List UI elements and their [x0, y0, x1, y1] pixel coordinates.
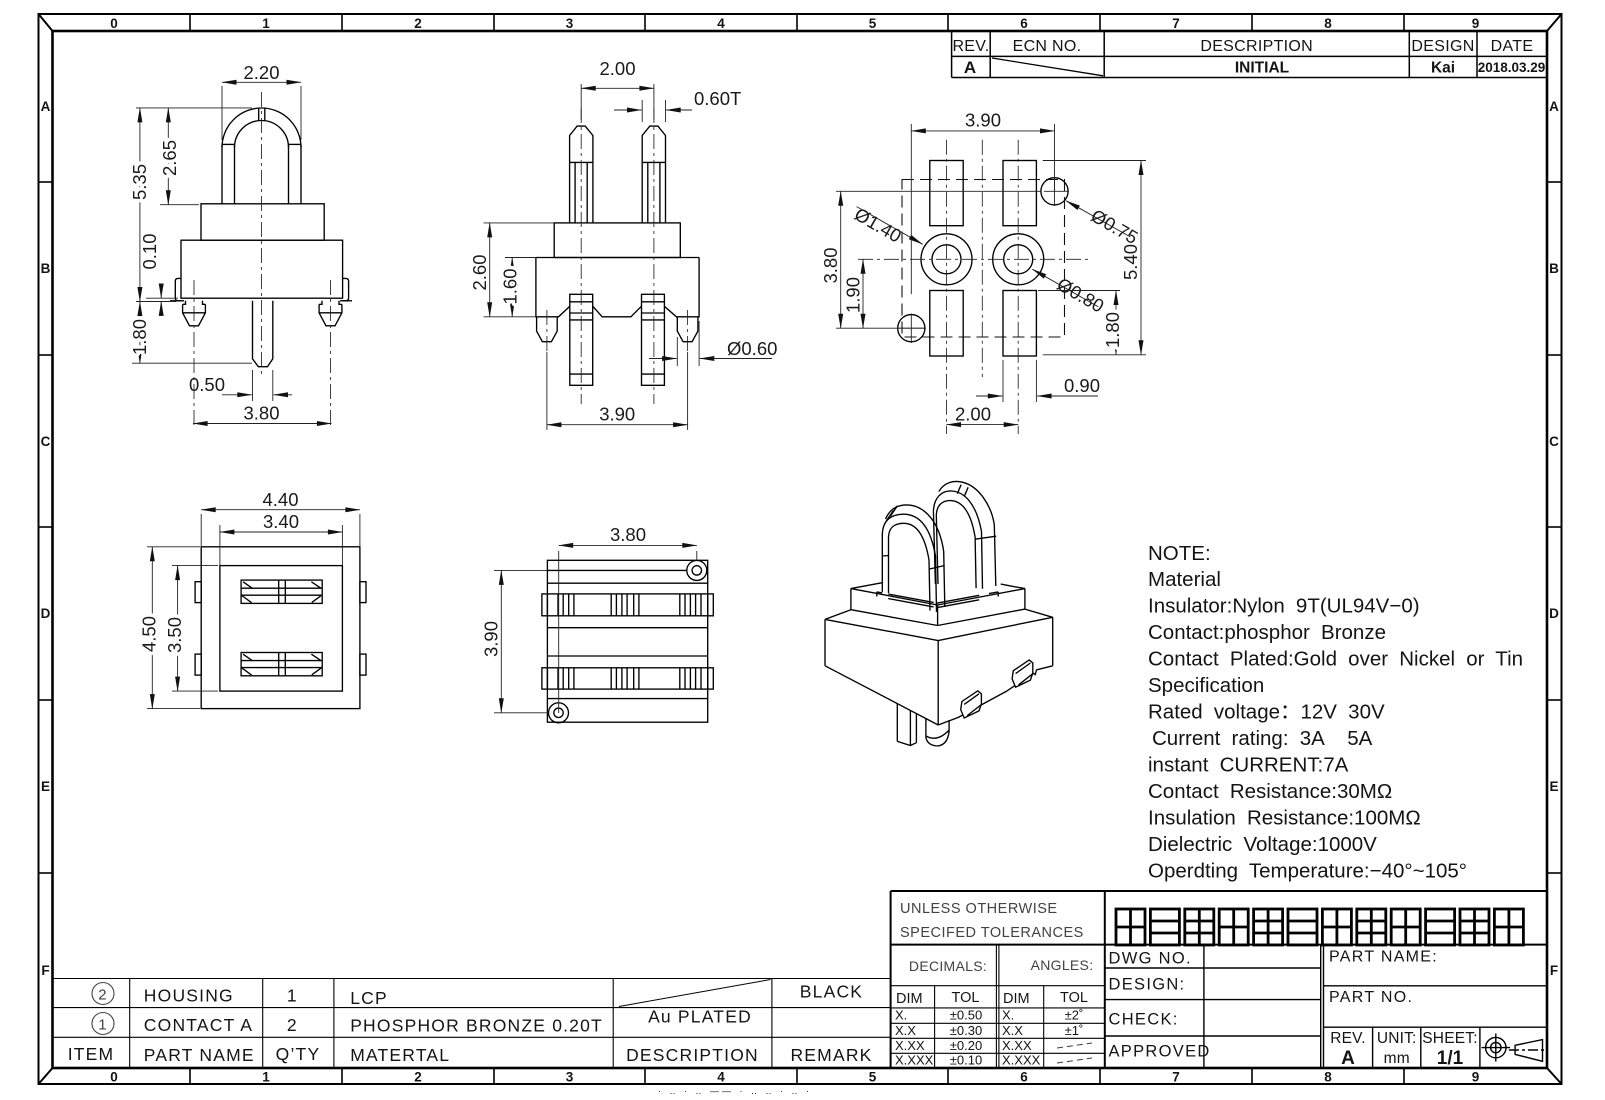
svg-text:A: A	[1549, 99, 1559, 114]
svg-text:Dielectric Voltage:1000V: Dielectric Voltage:1000V	[1148, 833, 1377, 856]
svg-text:mm: mm	[1384, 1050, 1410, 1067]
svg-text:ECN NO.: ECN NO.	[1013, 38, 1082, 55]
svg-text:0: 0	[110, 1070, 118, 1085]
svg-text:SHEET:: SHEET:	[1422, 1030, 1477, 1047]
svg-text:DESCRIPTION: DESCRIPTION	[1200, 38, 1313, 55]
svg-text:X.XX: X.XX	[1002, 1038, 1032, 1053]
svg-text:Insulation Resistance:100MΩ: Insulation Resistance:100MΩ	[1148, 807, 1421, 830]
svg-text:1.80: 1.80	[129, 319, 150, 355]
svg-text:1/1: 1/1	[1437, 1048, 1464, 1069]
svg-text:REV.: REV.	[952, 38, 989, 55]
svg-text:4.40: 4.40	[262, 489, 298, 510]
svg-text:DESIGN:: DESIGN:	[1109, 976, 1186, 994]
svg-text:X.XXX: X.XXX	[895, 1053, 934, 1068]
svg-text:C: C	[41, 434, 51, 449]
svg-text:2.20: 2.20	[243, 62, 279, 83]
svg-text:1: 1	[262, 16, 270, 31]
svg-text:7: 7	[1172, 1070, 1180, 1085]
svg-text:DESCRIPTION: DESCRIPTION	[626, 1045, 759, 1065]
svg-text:1: 1	[98, 1017, 108, 1034]
svg-text:A: A	[1341, 1048, 1355, 1069]
svg-text:B: B	[1549, 261, 1559, 276]
svg-text:3.80: 3.80	[820, 247, 841, 283]
svg-text:DWG NO.: DWG NO.	[1109, 950, 1192, 968]
svg-text:3.90: 3.90	[965, 110, 1001, 131]
svg-text:1: 1	[262, 1070, 270, 1085]
svg-text:LCP: LCP	[350, 988, 388, 1008]
svg-text:Material: Material	[1148, 568, 1221, 591]
svg-text:X.XXX: X.XXX	[1002, 1053, 1041, 1068]
svg-text:0.50: 0.50	[189, 374, 225, 395]
svg-text:±0.20: ±0.20	[950, 1038, 982, 1053]
svg-text:· ‥ · ‥ —— · ‥ ‥ · ‥ ·: · ‥ · ‥ —— · ‥ ‥ · ‥ ·	[658, 1086, 812, 1096]
svg-text:5.40: 5.40	[1120, 244, 1141, 280]
svg-text:6: 6	[1020, 16, 1028, 31]
svg-text:Current rating: 3A 5A: Current rating: 3A 5A	[1152, 727, 1373, 750]
svg-text:Contact Plated:Gold over Nicke: Contact Plated:Gold over Nickel or Tin	[1148, 648, 1523, 671]
svg-text:±0.10: ±0.10	[950, 1053, 982, 1068]
svg-text:4: 4	[717, 16, 725, 31]
svg-text:6: 6	[1020, 1070, 1028, 1085]
svg-text:ANGLES:: ANGLES:	[1031, 957, 1094, 973]
svg-text:MATERTAL: MATERTAL	[350, 1045, 450, 1065]
svg-text:F: F	[1550, 963, 1558, 978]
svg-text:5.35: 5.35	[129, 164, 150, 200]
svg-text:Ø0.60: Ø0.60	[727, 338, 777, 359]
svg-text:9: 9	[1472, 16, 1480, 31]
svg-text:NOTE:: NOTE:	[1148, 542, 1211, 565]
svg-text:0.10: 0.10	[139, 233, 160, 269]
svg-text:UNIT:: UNIT:	[1377, 1030, 1417, 1047]
svg-text:3: 3	[566, 16, 574, 31]
svg-text:2.60: 2.60	[469, 254, 490, 290]
svg-text:4: 4	[717, 1070, 725, 1085]
svg-text:PART NO.: PART NO.	[1329, 989, 1413, 1006]
svg-text:1.90: 1.90	[843, 277, 864, 313]
svg-text:±0.30: ±0.30	[950, 1023, 982, 1038]
svg-text:2: 2	[414, 16, 422, 31]
svg-text:0: 0	[110, 16, 118, 31]
svg-text:BLACK: BLACK	[800, 982, 863, 1002]
svg-text:TOL: TOL	[1060, 990, 1088, 1006]
svg-text:2.00: 2.00	[599, 58, 635, 79]
svg-text:APPROVED: APPROVED	[1109, 1043, 1211, 1061]
svg-text:DECIMALS:: DECIMALS:	[909, 958, 987, 974]
svg-text:D: D	[1549, 606, 1559, 621]
svg-text:2: 2	[98, 987, 108, 1004]
svg-text:DATE: DATE	[1491, 38, 1534, 55]
svg-text:D: D	[41, 606, 51, 621]
svg-text:2.00: 2.00	[955, 404, 991, 425]
svg-text:Specification: Specification	[1148, 674, 1264, 697]
svg-text:±1˚: ±1˚	[1065, 1023, 1084, 1038]
svg-text:3.80: 3.80	[610, 524, 646, 545]
svg-text:DIM: DIM	[896, 991, 923, 1007]
svg-text:5: 5	[869, 16, 877, 31]
svg-text:Q’TY: Q’TY	[276, 1044, 321, 1064]
svg-text:3.40: 3.40	[263, 511, 299, 532]
svg-text:PART NAME: PART NAME	[144, 1045, 255, 1065]
svg-text:B: B	[41, 261, 51, 276]
svg-text:C: C	[1549, 434, 1559, 449]
svg-text:X.: X.	[1002, 1008, 1014, 1023]
svg-text:SPECIFED TOLERANCES: SPECIFED TOLERANCES	[900, 925, 1084, 941]
svg-text:X.XX: X.XX	[895, 1038, 925, 1053]
svg-text:Au PLATED: Au PLATED	[648, 1007, 752, 1027]
svg-text:9: 9	[1472, 1070, 1480, 1085]
svg-text:A: A	[964, 58, 976, 77]
svg-text:3.80: 3.80	[243, 403, 279, 424]
svg-text:E: E	[41, 779, 50, 794]
svg-text:Rated voltage：12V 30V: Rated voltage：12V 30V	[1148, 701, 1385, 724]
svg-text:2: 2	[414, 1070, 422, 1085]
svg-text:1.80: 1.80	[1102, 312, 1123, 348]
svg-text:PART NAME:: PART NAME:	[1329, 949, 1438, 966]
svg-text:5: 5	[869, 1070, 877, 1085]
svg-text:±2˚: ±2˚	[1065, 1008, 1084, 1023]
svg-text:8: 8	[1324, 1070, 1332, 1085]
svg-text:F: F	[41, 963, 49, 978]
svg-text:REV.: REV.	[1330, 1030, 1366, 1047]
svg-text:E: E	[1549, 779, 1558, 794]
svg-text:Insulator:Nylon 9T(UL94V−0): Insulator:Nylon 9T(UL94V−0)	[1148, 595, 1420, 618]
svg-text:CHECK:: CHECK:	[1109, 1011, 1179, 1029]
svg-text:0.90: 0.90	[1064, 375, 1100, 396]
svg-text:UNLESS OTHERWISE: UNLESS OTHERWISE	[900, 901, 1058, 917]
svg-text:INITIAL: INITIAL	[1235, 60, 1289, 77]
svg-text:HOUSING: HOUSING	[144, 986, 234, 1006]
svg-text:DESIGN: DESIGN	[1411, 38, 1474, 55]
svg-text:1.60: 1.60	[500, 268, 521, 304]
svg-text:PHOSPHOR BRONZE 0.20T: PHOSPHOR BRONZE 0.20T	[350, 1016, 603, 1036]
svg-text:TOL: TOL	[952, 990, 980, 1006]
svg-text:Contact:phosphor Bronze: Contact:phosphor Bronze	[1148, 621, 1386, 644]
svg-text:X.X: X.X	[895, 1023, 916, 1038]
svg-text:3: 3	[566, 1070, 574, 1085]
svg-text:X.: X.	[895, 1008, 907, 1023]
svg-text:7: 7	[1172, 16, 1180, 31]
svg-text:Operdting Temperature:−40°~105: Operdting Temperature:−40°~105°	[1148, 860, 1467, 883]
svg-text:4.50: 4.50	[139, 616, 160, 652]
svg-text:2018.03.29: 2018.03.29	[1478, 60, 1546, 75]
svg-text:Kai: Kai	[1431, 60, 1455, 77]
svg-text:1: 1	[287, 986, 298, 1006]
svg-text:CONTACT A: CONTACT A	[144, 1015, 253, 1035]
svg-text:3.50: 3.50	[164, 617, 185, 653]
svg-text:±0.50: ±0.50	[950, 1008, 982, 1023]
svg-text:instant CURRENT:7A: instant CURRENT:7A	[1148, 754, 1349, 777]
svg-text:Contact Resistance:30MΩ: Contact Resistance:30MΩ	[1148, 780, 1392, 803]
svg-text:3.90: 3.90	[481, 621, 502, 657]
svg-text:8: 8	[1324, 16, 1332, 31]
svg-text:ITEM: ITEM	[68, 1044, 115, 1064]
svg-text:DIM: DIM	[1003, 991, 1030, 1007]
svg-text:2: 2	[287, 1015, 298, 1035]
svg-text:X.X: X.X	[1002, 1023, 1023, 1038]
svg-text:2.65: 2.65	[159, 140, 180, 176]
svg-text:3.90: 3.90	[599, 404, 635, 425]
svg-text:A: A	[41, 99, 51, 114]
svg-text:0.60T: 0.60T	[694, 88, 741, 109]
svg-text:REMARK: REMARK	[790, 1045, 872, 1065]
